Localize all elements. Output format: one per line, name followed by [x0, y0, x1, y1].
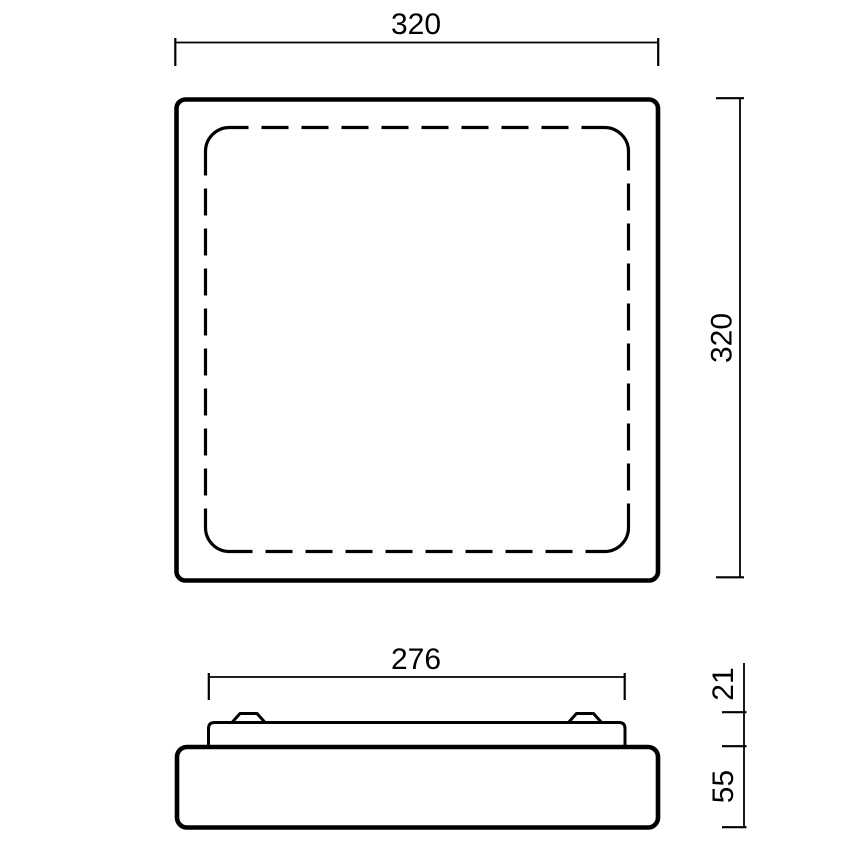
dimension-label-body-height: 55	[707, 770, 740, 803]
top-view-outer-outline	[177, 100, 659, 581]
drawing-canvas: 320 320	[0, 0, 850, 850]
drawing-root: 320 320	[175, 8, 747, 828]
dimension-label-mount-width: 276	[391, 643, 441, 676]
dim-top-width: 320	[175, 8, 659, 66]
top-view-dashed-corner-arcs	[206, 128, 629, 552]
top-view	[177, 100, 659, 581]
technical-drawing: 320 320	[0, 0, 850, 850]
dim-mount-width: 276	[209, 643, 626, 700]
dimension-label-upper-height: 21	[707, 667, 740, 700]
dim-top-height: 320	[706, 98, 745, 578]
dimension-label-top-height: 320	[706, 313, 739, 363]
dim-stack-heights: 21 55	[707, 663, 747, 828]
side-view-diffuser-body	[177, 747, 658, 828]
side-view	[177, 714, 658, 828]
dimension-label-top-width: 320	[391, 8, 441, 41]
side-view-base-plate	[209, 723, 626, 749]
